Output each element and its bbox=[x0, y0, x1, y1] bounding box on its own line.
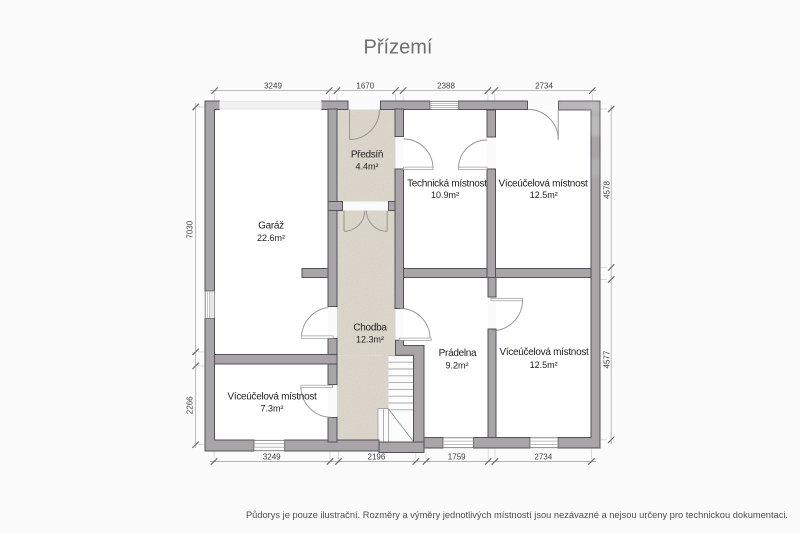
svg-text:Víceúčelová místnost: Víceúčelová místnost bbox=[227, 392, 317, 403]
svg-text:Víceúčelová místnost: Víceúčelová místnost bbox=[498, 179, 588, 190]
svg-text:4577: 4577 bbox=[602, 350, 611, 368]
svg-text:7030: 7030 bbox=[186, 220, 195, 238]
svg-text:12.5m²: 12.5m² bbox=[530, 360, 558, 370]
svg-text:3249: 3249 bbox=[264, 81, 282, 90]
svg-text:Chodba: Chodba bbox=[353, 323, 387, 334]
svg-text:1670: 1670 bbox=[356, 81, 374, 90]
svg-text:Garáž: Garáž bbox=[258, 221, 284, 232]
svg-text:2388: 2388 bbox=[437, 81, 455, 90]
svg-text:9.2m²: 9.2m² bbox=[445, 360, 468, 370]
svg-text:2196: 2196 bbox=[368, 453, 386, 462]
svg-text:1759: 1759 bbox=[448, 453, 466, 462]
svg-text:2266: 2266 bbox=[186, 396, 195, 414]
svg-text:4578: 4578 bbox=[602, 181, 611, 199]
svg-text:Přízemí: Přízemí bbox=[364, 37, 433, 59]
svg-text:Půdorys je pouze ilustrační. R: Půdorys je pouze ilustrační. Rozměry a v… bbox=[246, 510, 788, 520]
svg-text:12.3m²: 12.3m² bbox=[356, 334, 384, 344]
svg-text:Víceúčelová místnost: Víceúčelová místnost bbox=[499, 347, 589, 358]
svg-text:Prádelna: Prádelna bbox=[439, 348, 477, 359]
svg-text:10.9m²: 10.9m² bbox=[431, 190, 459, 200]
svg-text:22.6m²: 22.6m² bbox=[257, 233, 285, 243]
svg-text:2734: 2734 bbox=[534, 453, 552, 462]
svg-text:4.4m²: 4.4m² bbox=[355, 162, 378, 172]
svg-text:Technická místnost: Technická místnost bbox=[407, 179, 487, 190]
svg-text:3249: 3249 bbox=[263, 453, 281, 462]
svg-text:Předsíň: Předsíň bbox=[351, 150, 383, 161]
svg-text:12.5m²: 12.5m² bbox=[530, 190, 558, 200]
svg-text:7.3m²: 7.3m² bbox=[260, 403, 283, 413]
svg-text:2734: 2734 bbox=[535, 81, 553, 90]
